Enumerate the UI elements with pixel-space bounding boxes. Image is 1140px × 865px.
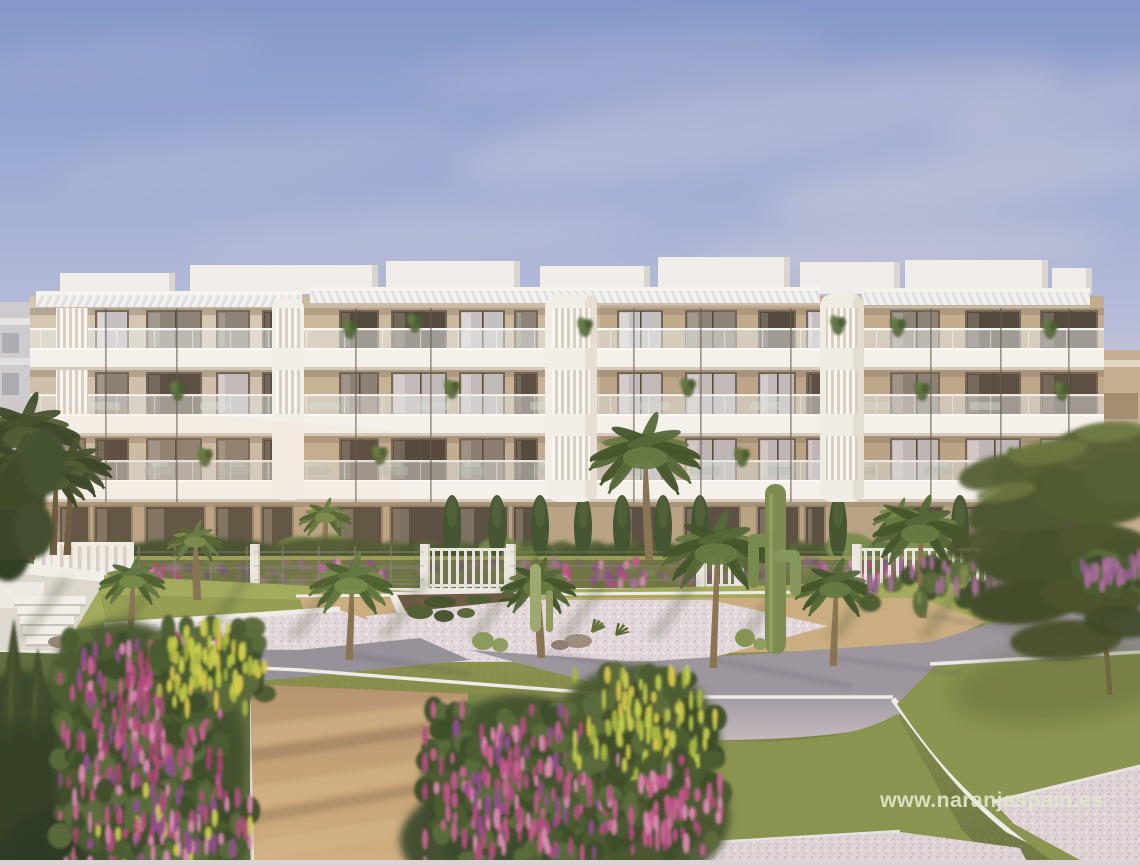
svg-text:www.naranjaspain.es: www.naranjaspain.es <box>879 788 1104 812</box>
